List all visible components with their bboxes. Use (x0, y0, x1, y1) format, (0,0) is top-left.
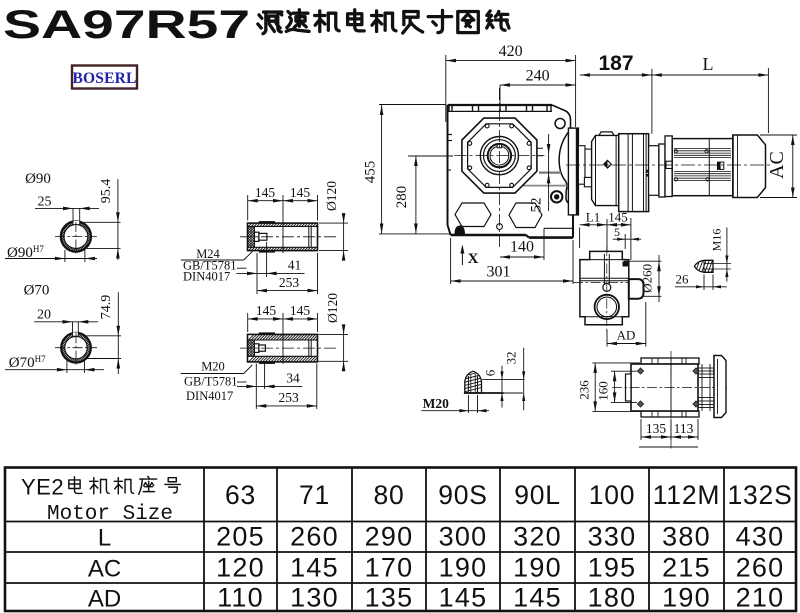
svg-text:GB/T5781: GB/T5781 (184, 375, 237, 389)
svg-text:M16: M16 (710, 229, 724, 252)
svg-text:135: 135 (365, 583, 414, 613)
svg-text:20: 20 (37, 308, 51, 323)
svg-text:300: 300 (439, 522, 488, 552)
svg-text:140: 140 (510, 239, 534, 256)
svg-text:AD: AD (88, 586, 121, 613)
svg-text:455: 455 (363, 161, 379, 184)
svg-text:71: 71 (299, 480, 330, 510)
svg-text:SA97R57: SA97R57 (3, 3, 250, 47)
svg-text:80: 80 (373, 480, 404, 510)
svg-text:25: 25 (38, 195, 52, 210)
svg-text:236: 236 (576, 380, 591, 400)
svg-text:145: 145 (608, 210, 628, 225)
svg-text:170: 170 (365, 553, 414, 583)
svg-text:32: 32 (504, 352, 519, 365)
svg-text:52: 52 (529, 198, 545, 213)
svg-text:215: 215 (662, 553, 711, 583)
svg-text:160: 160 (596, 381, 611, 401)
svg-text:L: L (98, 525, 111, 552)
svg-text:63: 63 (225, 480, 256, 510)
svg-text:260: 260 (736, 553, 785, 583)
svg-text:74.9: 74.9 (99, 295, 114, 320)
svg-text:430: 430 (736, 522, 785, 552)
svg-text:AC: AC (766, 151, 788, 179)
svg-text:120: 120 (216, 553, 265, 583)
svg-text:L1: L1 (586, 210, 600, 225)
svg-text:AC: AC (88, 556, 121, 583)
svg-text:Ø120: Ø120 (324, 181, 339, 211)
svg-text:205: 205 (216, 522, 265, 552)
svg-text:6: 6 (483, 369, 498, 376)
svg-text:5: 5 (614, 225, 620, 239)
svg-text:AD: AD (617, 328, 636, 343)
svg-text:34: 34 (286, 371, 300, 386)
svg-text:100: 100 (589, 480, 636, 510)
svg-text:253: 253 (278, 390, 299, 405)
svg-text:90S: 90S (438, 480, 488, 510)
svg-text:190: 190 (513, 553, 562, 583)
svg-text:145: 145 (513, 583, 562, 613)
svg-text:145: 145 (290, 185, 311, 200)
svg-text:41: 41 (288, 258, 302, 273)
svg-text:190: 190 (662, 583, 711, 613)
svg-text:132S: 132S (727, 480, 792, 510)
svg-text:YE2: YE2 (21, 475, 64, 500)
svg-text:113: 113 (674, 421, 694, 436)
svg-text:Ø90: Ø90 (25, 171, 51, 187)
svg-text:210: 210 (736, 583, 785, 613)
svg-text:260: 260 (290, 522, 339, 552)
svg-text:L: L (703, 54, 714, 74)
svg-text:145: 145 (255, 185, 276, 200)
svg-text:145: 145 (256, 303, 277, 318)
svg-text:110: 110 (217, 583, 264, 613)
svg-text:BOSERL: BOSERL (72, 70, 136, 87)
svg-text:280: 280 (394, 186, 410, 209)
svg-text:DIN4017: DIN4017 (186, 389, 233, 403)
svg-text:145: 145 (439, 583, 488, 613)
svg-text:Ø120: Ø120 (325, 293, 340, 323)
svg-text:26: 26 (676, 272, 690, 287)
svg-text:M20: M20 (423, 396, 449, 411)
svg-text:Motor Size: Motor Size (47, 503, 173, 526)
svg-text:301: 301 (487, 264, 511, 281)
svg-text:145: 145 (290, 553, 339, 583)
svg-text:290: 290 (365, 522, 414, 552)
svg-text:330: 330 (588, 522, 637, 552)
svg-text:240: 240 (526, 68, 550, 85)
svg-text:DIN4017: DIN4017 (183, 270, 230, 284)
svg-text:180: 180 (588, 583, 637, 613)
svg-text:187: 187 (598, 52, 633, 75)
svg-text:X: X (468, 251, 479, 267)
svg-text:195: 195 (588, 553, 637, 583)
svg-text:380: 380 (662, 522, 711, 552)
svg-text:190: 190 (439, 553, 488, 583)
svg-text:112M: 112M (653, 480, 721, 510)
svg-text:420: 420 (499, 43, 523, 60)
svg-text:90L: 90L (514, 480, 561, 510)
svg-text:M20: M20 (201, 360, 225, 374)
svg-text:320: 320 (513, 522, 562, 552)
svg-text:95.4: 95.4 (99, 179, 114, 204)
svg-text:Ø260: Ø260 (640, 264, 655, 293)
svg-text:135: 135 (646, 421, 667, 436)
svg-text:253: 253 (279, 275, 300, 290)
svg-text:130: 130 (290, 583, 339, 613)
svg-text:145: 145 (290, 303, 311, 318)
svg-text:Ø70H7: Ø70H7 (9, 354, 46, 371)
svg-text:Ø70: Ø70 (24, 283, 50, 299)
